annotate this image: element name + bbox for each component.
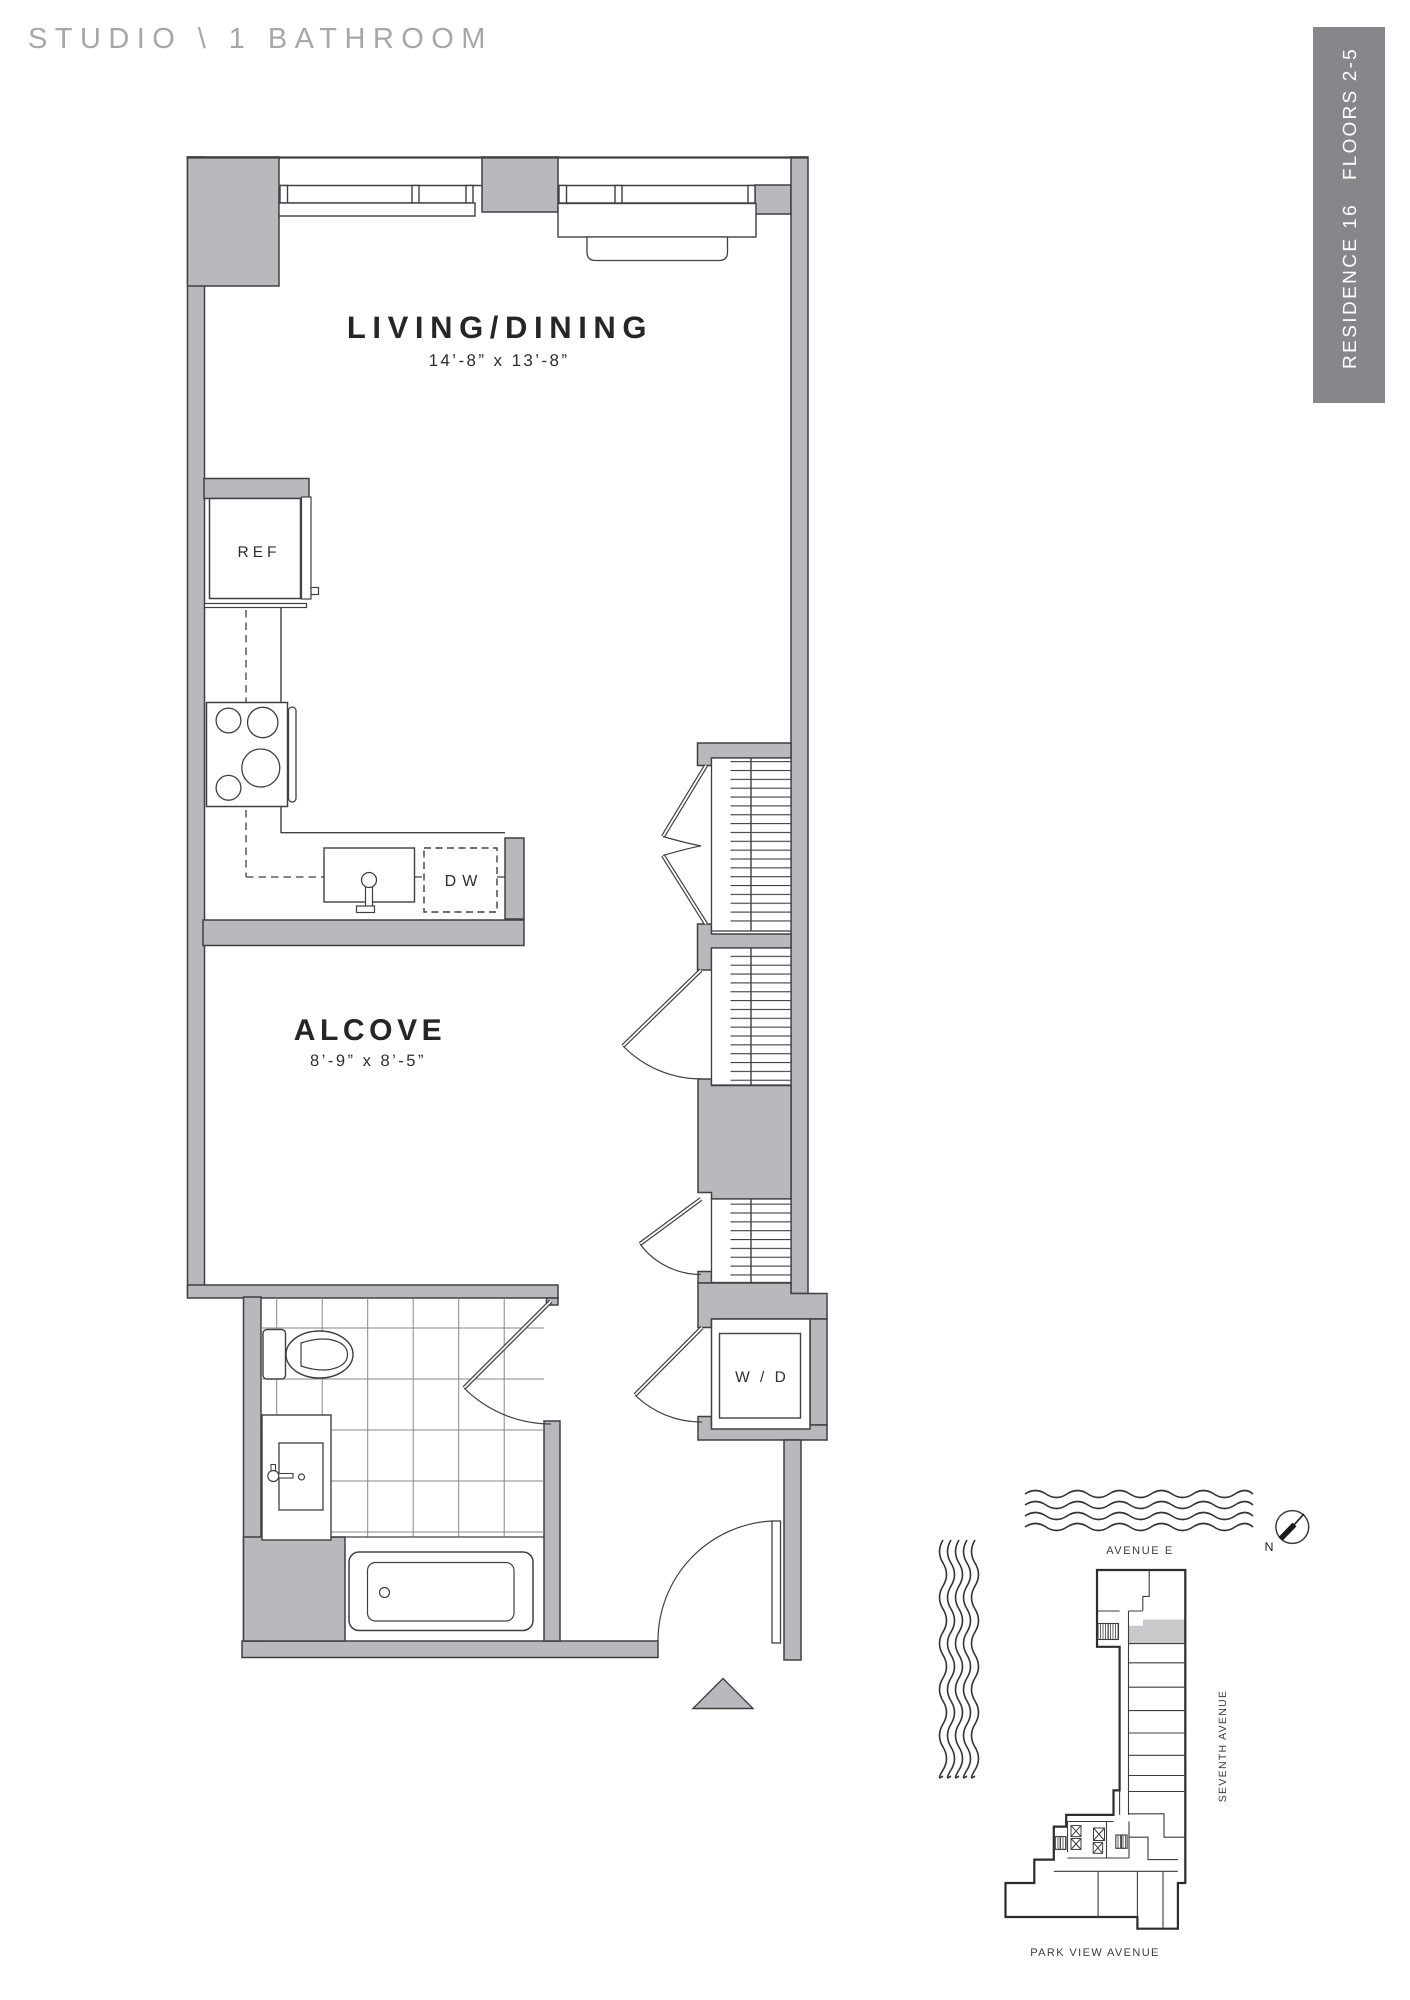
svg-text:LIVING/DINING: LIVING/DINING: [347, 310, 653, 345]
svg-text:AVENUE E: AVENUE E: [1106, 1545, 1174, 1557]
svg-text:N: N: [1265, 1540, 1274, 1554]
svg-text:W / D: W / D: [735, 1369, 789, 1386]
svg-text:14’-8” x 13’-8”: 14’-8” x 13’-8”: [429, 351, 570, 370]
svg-text:8’-9” x 8’-5”: 8’-9” x 8’-5”: [310, 1052, 426, 1070]
svg-text:REF: REF: [238, 544, 281, 561]
svg-text:DW: DW: [445, 873, 484, 890]
svg-text:STUDIO \ 1 BATHROOM: STUDIO \ 1 BATHROOM: [28, 23, 493, 55]
svg-text:PARK VIEW AVENUE: PARK VIEW AVENUE: [1030, 1947, 1160, 1959]
svg-text:SEVENTH AVENUE: SEVENTH AVENUE: [1217, 1690, 1229, 1803]
svg-text:ALCOVE: ALCOVE: [294, 1014, 447, 1047]
svg-text:FLOORS 2-5: FLOORS 2-5: [1340, 47, 1361, 180]
svg-text:RESIDENCE 16: RESIDENCE 16: [1340, 203, 1361, 369]
